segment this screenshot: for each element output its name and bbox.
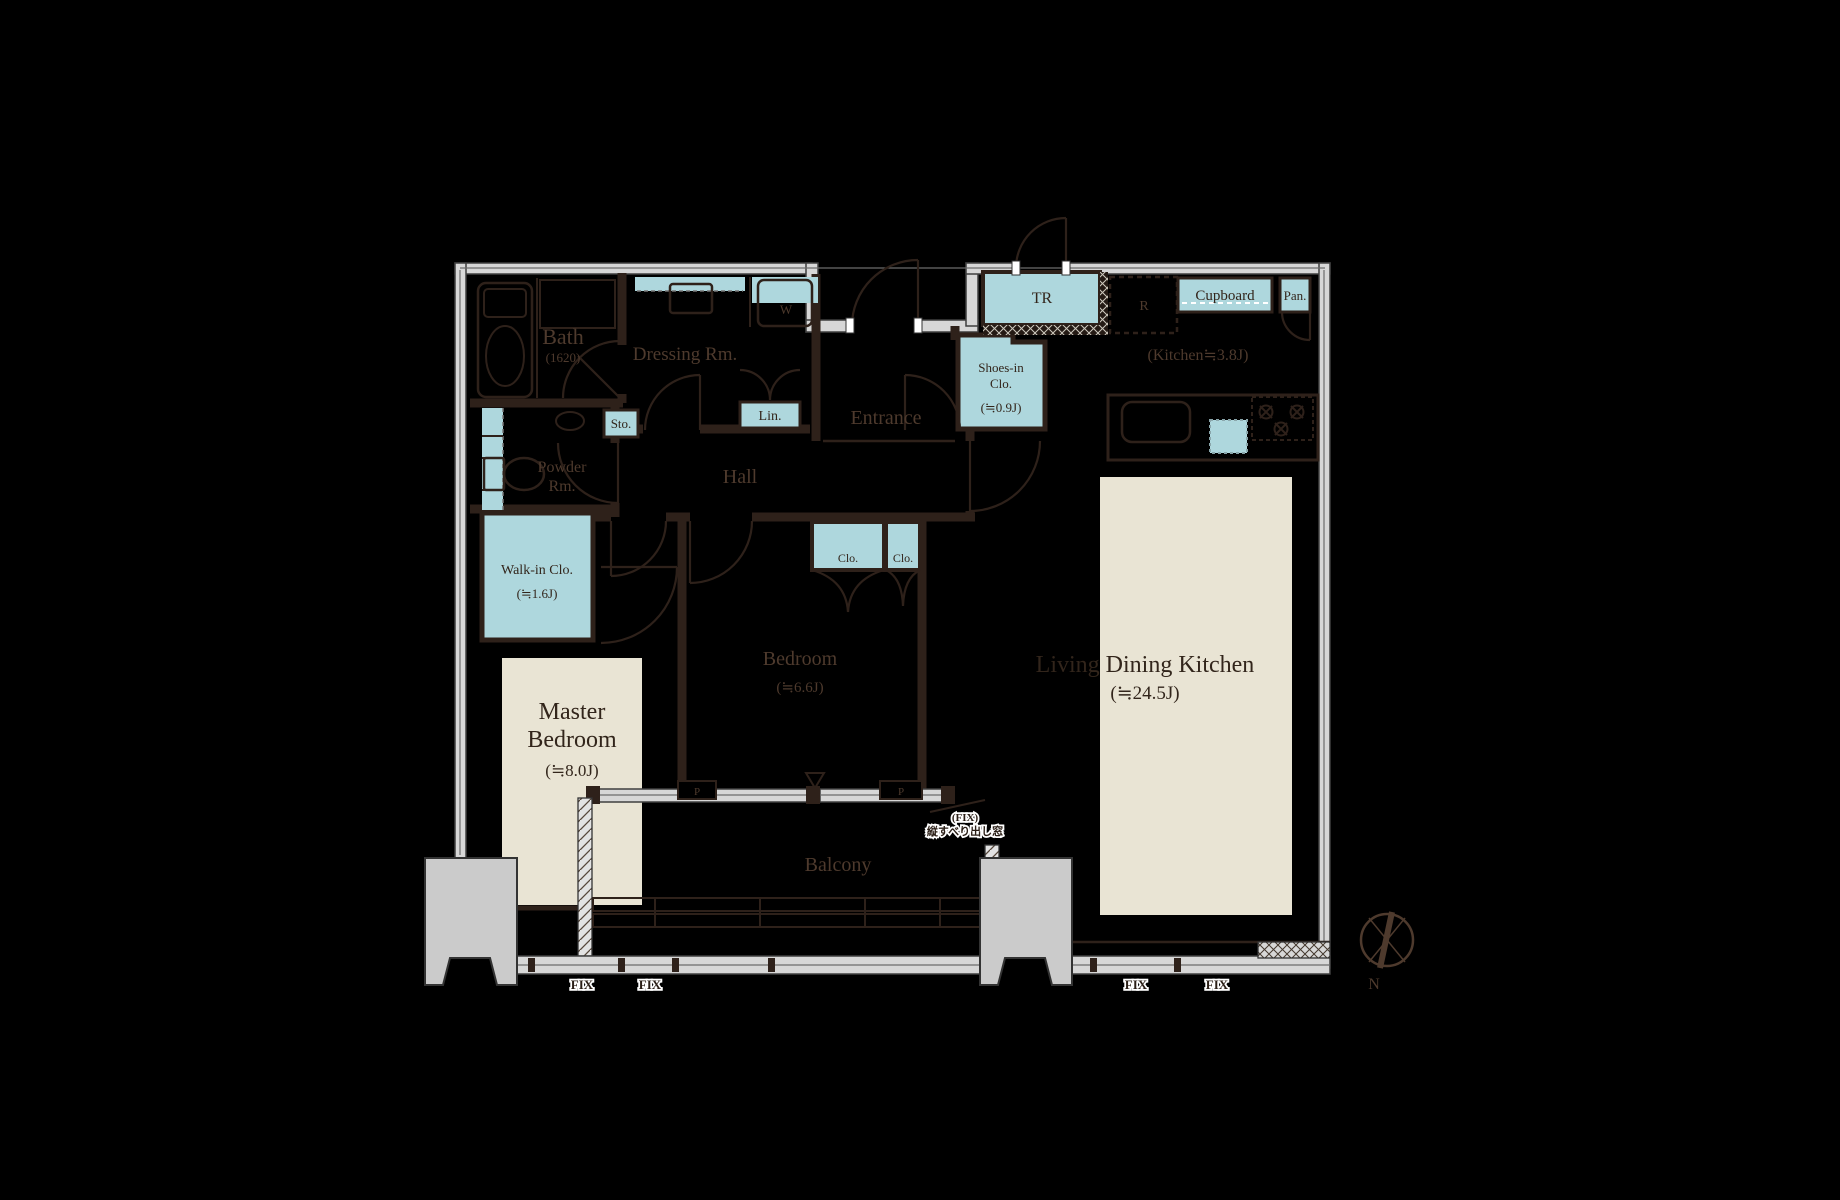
railing-post-3 xyxy=(672,958,679,972)
window-note-label-2: 縦すべり出し窓 xyxy=(927,824,1003,838)
tr-jamb-left xyxy=(1012,261,1020,275)
compass-north-label: N xyxy=(1368,976,1380,993)
dishwasher xyxy=(1210,420,1247,453)
balcony-label: Balcony xyxy=(805,854,872,876)
fix-window-label-4: FIX xyxy=(1206,977,1229,992)
entrance-jamb-right xyxy=(914,318,922,333)
floor-plan: Bath (1620) Dressing Rm. W Entrance TR R… xyxy=(0,0,1840,1200)
master-bedroom-size-label: (≒8.0J) xyxy=(545,761,598,780)
bottom-right-hatch-block xyxy=(1258,942,1330,958)
closet-left-label: Clo. xyxy=(838,551,858,565)
bath-label: Bath xyxy=(542,324,584,349)
kitchen-size-label: (Kitchen≒3.8J) xyxy=(1148,347,1249,364)
powder-room-label-2: Rm. xyxy=(548,478,575,495)
balcony-wall-left-hatch xyxy=(578,798,592,956)
entrance-jamb-left xyxy=(846,318,854,333)
shoes-closet-size-label: (≒0.9J) xyxy=(981,400,1022,415)
ldk-window-post-2 xyxy=(1174,958,1181,972)
window-pier-center xyxy=(806,786,820,804)
bedroom-size-label: (≒6.6J) xyxy=(776,680,823,696)
powder-room-label-1: Powder xyxy=(538,459,588,476)
pillar-marker-right-label: P xyxy=(898,786,904,798)
walkin-closet-size-label: (≒1.6J) xyxy=(517,586,558,601)
master-bedroom-label-1: Master xyxy=(539,699,606,725)
pillar-marker-left-label: P xyxy=(694,786,700,798)
window-pier-right xyxy=(941,786,955,804)
bath-size-label: (1620) xyxy=(546,350,581,365)
pantry-label: Pan. xyxy=(1284,288,1307,303)
master-bedroom-rug xyxy=(502,658,642,905)
railing-post-4 xyxy=(768,958,775,972)
dressing-room-label: Dressing Rm. xyxy=(633,344,738,365)
ldk-window-post-1 xyxy=(1090,958,1097,972)
ldk-size-label: (≒24.5J) xyxy=(1110,683,1179,704)
fix-window-label-1: FIX xyxy=(571,977,594,992)
fix-window-label-3: FIX xyxy=(1125,977,1148,992)
fix-window-label-2: FIX xyxy=(639,977,662,992)
shoes-closet-label-1: Shoes-in xyxy=(978,360,1024,375)
hall-label: Hall xyxy=(723,466,758,488)
walkin-closet-label: Walk-in Clo. xyxy=(501,563,573,578)
entrance-label: Entrance xyxy=(850,407,921,429)
trunk-room-label: TR xyxy=(1032,290,1053,307)
trunk-room-hatch-bottom xyxy=(983,325,1108,335)
closet-right-label: Clo. xyxy=(893,551,913,565)
window-note-label-1: (FIX) xyxy=(952,812,979,824)
ldk-label: Living Dining Kitchen xyxy=(1036,652,1255,678)
linen-label: Lin. xyxy=(759,409,782,424)
storage-label: Sto. xyxy=(611,416,632,431)
washer-label: W xyxy=(780,302,793,317)
railing-post-1 xyxy=(528,958,535,972)
master-bedroom-label-2: Bedroom xyxy=(527,727,617,753)
bedroom-label: Bedroom xyxy=(763,648,838,670)
cupboard-label: Cupboard xyxy=(1195,288,1255,304)
shoes-closet-label-2: Clo. xyxy=(990,376,1012,391)
trunk-room-hatch-side xyxy=(1100,272,1108,335)
tr-jamb-right xyxy=(1062,261,1070,275)
refrigerator-label: R xyxy=(1139,299,1149,314)
railing-post-2 xyxy=(618,958,625,972)
